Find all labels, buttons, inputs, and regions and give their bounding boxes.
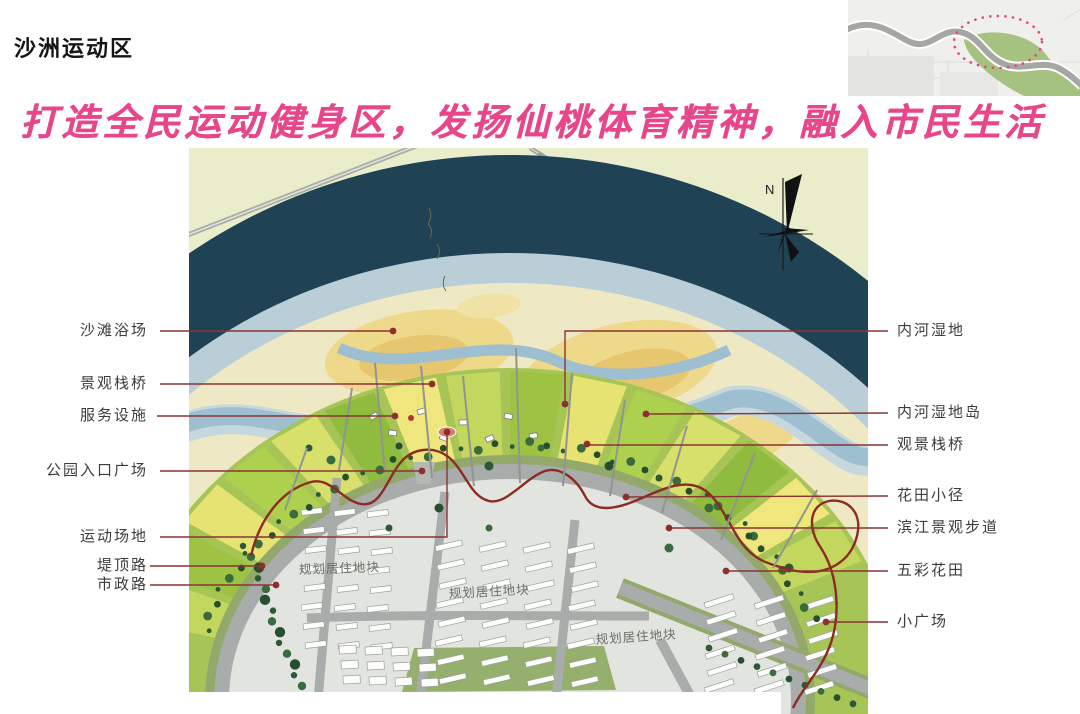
annotation-inner-wetland-island: 内河湿地岛	[897, 404, 982, 422]
master-plan-map: N 规划居住地块 规划居住地块 规划居住地块	[189, 148, 868, 714]
north-label: N	[765, 182, 774, 197]
page-title: 沙洲运动区	[14, 31, 134, 63]
annotation-park-entrance: 公园入口广场	[30, 462, 148, 480]
annotation-service-facility: 服务设施	[30, 407, 148, 425]
locator-map	[848, 0, 1080, 96]
annotation-scenic-boardwalk: 景观栈桥	[30, 375, 148, 393]
slogan-headline: 打造全民运动健身区，发扬仙桃体育精神，融入市民生活	[20, 92, 1070, 146]
annotation-levee-road: 堤顶路	[30, 557, 148, 575]
annotation-riverside-walkway: 滨江景观步道	[897, 519, 999, 537]
residential-plot-label: 规划居住地块	[299, 559, 380, 577]
annotation-inner-river-wetland: 内河湿地	[897, 322, 965, 340]
annotation-beach-bath: 沙滩浴场	[30, 322, 148, 340]
annotation-viewing-boardwalk: 观景栈桥	[897, 436, 965, 454]
annotation-flower-field-trail: 花田小径	[897, 487, 965, 505]
annotation-sports-ground: 运动场地	[30, 528, 148, 546]
annotation-colorful-flower-field: 五彩花田	[897, 562, 965, 580]
annotation-municipal-road: 市政路	[30, 576, 148, 594]
annotation-small-plaza: 小广场	[897, 613, 948, 631]
sports-field	[438, 427, 456, 437]
